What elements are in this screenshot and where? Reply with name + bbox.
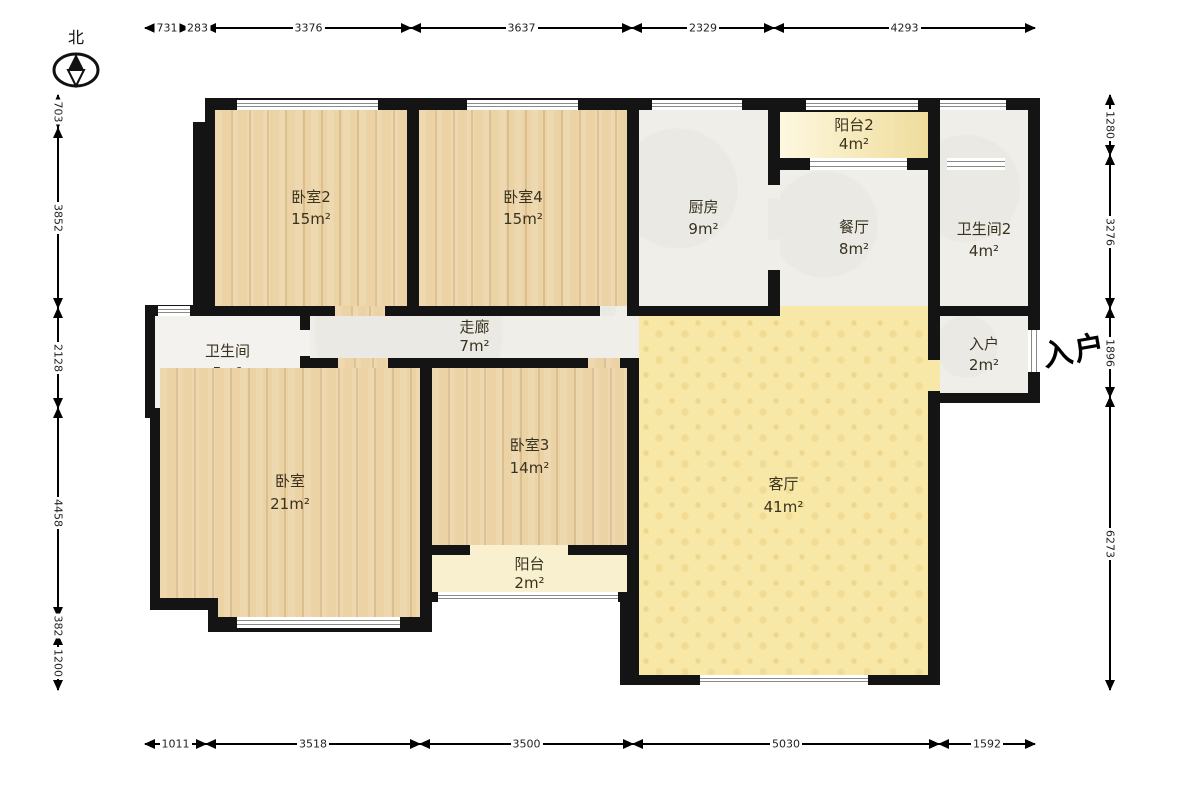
room-bathroom2-floor: 卫生间2 4m² [940,110,1028,306]
dim-segment: 283 [189,18,206,38]
room-area: 4m² [969,240,999,263]
room-balcony2-label: 阳台2 4m² [780,112,928,158]
floor-plan: 卧室2 15m² 卧室4 15m² 厨房 9m² 阳台2 4m² 餐厅 8m² … [0,0,1177,785]
window-bathroom2-inner [947,158,1005,170]
room-name: 卧室4 [503,186,543,209]
dim-value: 1011 [160,738,192,751]
dim-segment: 1011 [145,734,206,754]
room-area: 7m² [459,337,489,356]
room-balcony-label: 阳台 2m² [432,555,627,592]
room-bedroom-label: 卧室 21m² [160,368,420,617]
wall-block-topleft-step [193,122,215,320]
dim-value: 703 [52,99,65,124]
room-area: 2m² [514,574,544,593]
dim-segment: 3276 [1100,155,1120,308]
window-living-bottom [700,675,868,685]
dim-value: 2128 [52,342,65,374]
room-name: 卧室3 [510,434,550,457]
room-bedroom2-label: 卧室2 15m² [215,110,407,306]
room-name: 餐厅 [839,216,869,239]
dim-segment: 3518 [206,734,420,754]
room-corridor-label: 走廊 7m² [310,316,639,358]
dim-value: 3518 [297,738,329,751]
dim-strip-left: 703 3852 2128 4458 382 1200 [48,95,68,690]
room-area: 15m² [503,208,543,231]
room-area: 9m² [688,218,718,241]
room-area: 15m² [291,208,331,231]
compass-icon [51,50,101,90]
room-bedroom-floor: 卧室 21m² [160,368,420,617]
room-name: 卫生间2 [957,218,1012,241]
room-name: 厨房 [688,196,718,219]
dim-segment: 2329 [632,18,774,38]
window-balcony2-dining [810,158,907,170]
room-corridor-floor: 走廊 7m² [310,316,639,358]
opening-entry-living [928,360,940,391]
room-kitchen-floor: 厨房 9m² [639,110,768,306]
window-bedroom4-top [467,100,578,110]
room-area: 8m² [839,238,869,261]
door-bedroom3 [588,358,620,368]
room-bedroom2-floor: 卧室2 15m² [215,110,407,306]
dim-value: 1896 [1104,337,1117,369]
room-area: 14m² [510,457,550,480]
dim-segment: 3500 [420,734,633,754]
dim-value: 3500 [511,738,543,751]
dim-segment: 1280 [1100,95,1120,155]
dim-segment: 1592 [939,734,1035,754]
room-bedroom3-floor: 卧室3 14m² [432,368,627,545]
room-bedroom4-label: 卧室4 15m² [419,110,627,306]
exterior-notch [138,610,208,640]
dim-strip-right: 1280 3276 1896 6273 [1100,95,1120,690]
north-indicator: 北 [50,24,102,94]
room-name: 客厅 [768,473,798,496]
room-name: 卧室 [275,470,305,493]
dim-value: 1592 [971,738,1003,751]
room-bathroom2-label: 卫生间2 4m² [940,110,1028,306]
door-balcony [470,545,568,555]
room-living-floor: 客厅 41m² [639,316,928,675]
window-bathroom-top [158,306,190,316]
dim-segment: 731 [145,18,189,38]
entry-door [1028,330,1040,372]
door-bathroom [300,330,310,356]
opening-dining-living [780,306,928,316]
dim-value: 5030 [770,738,802,751]
room-name: 入户 [969,334,999,354]
room-area: 21m² [270,493,310,516]
room-name: 走廊 [459,318,489,337]
dim-strip-top: 731 283 3376 3637 2329 4293 [145,18,1035,38]
dim-value: 283 [185,22,210,35]
opening-kitchen-dining [768,185,780,270]
window-balcony2-top [806,100,918,110]
dim-strip-bottom: 1011 3518 3500 5030 1592 [145,734,1035,754]
dim-value: 3276 [1104,216,1117,248]
door-bedroom [338,358,388,368]
dim-segment: 3637 [411,18,632,38]
dim-value: 4458 [52,497,65,529]
room-living-label: 客厅 41m² [639,316,928,675]
window-balcony-bottom [438,592,618,602]
dim-value: 3376 [293,22,325,35]
room-entry-floor: 入户 2m² [940,316,1028,393]
room-dining-label: 餐厅 8m² [780,170,928,306]
room-area: 2m² [969,355,999,375]
room-bedroom4-floor: 卧室4 15m² [419,110,627,306]
window-kitchen-top [652,100,742,110]
dim-value: 1200 [52,647,65,679]
room-balcony2-floor: 阳台2 4m² [780,112,928,158]
dim-value: 2329 [687,22,719,35]
dim-value: 3637 [506,22,538,35]
room-name: 卫生间 [205,340,250,363]
room-name: 阳台2 [834,116,874,136]
door-bedroom2 [335,306,385,316]
room-bedroom3-label: 卧室3 14m² [432,368,627,545]
room-dining-floor: 餐厅 8m² [780,170,928,306]
dim-segment: 6273 [1100,397,1120,690]
room-area: 41m² [764,496,804,519]
dim-segment: 703 [48,95,68,128]
room-kitchen-label: 厨房 9m² [639,110,768,306]
dim-segment: 5030 [633,734,939,754]
dim-segment: 3852 [48,128,68,308]
dim-value: 3852 [52,202,65,234]
dim-segment: 3376 [206,18,411,38]
window-bedroom-bottom [237,617,400,628]
dim-value: 4293 [889,22,921,35]
dim-segment: 382 [48,617,68,635]
dim-segment: 2128 [48,308,68,408]
room-balcony-floor: 阳台 2m² [432,555,627,592]
door-bedroom4 [600,306,627,316]
room-entry-label: 入户 2m² [940,316,1028,393]
window-bathroom2-top [940,100,1006,110]
window-bedroom2-top [237,100,378,110]
room-name: 卧室2 [291,186,331,209]
north-label: 北 [50,24,102,48]
room-area: 4m² [839,135,869,155]
dim-value: 731 [155,22,180,35]
wall-notch-step [150,598,218,610]
dim-value: 6273 [1104,528,1117,560]
dim-segment: 4293 [774,18,1035,38]
room-name: 阳台 [514,555,544,574]
dim-segment: 1200 [48,635,68,690]
dim-segment: 4458 [48,408,68,617]
dim-segment: 1896 [1100,308,1120,397]
dim-value: 1280 [1104,109,1117,141]
dim-value: 382 [52,614,65,639]
